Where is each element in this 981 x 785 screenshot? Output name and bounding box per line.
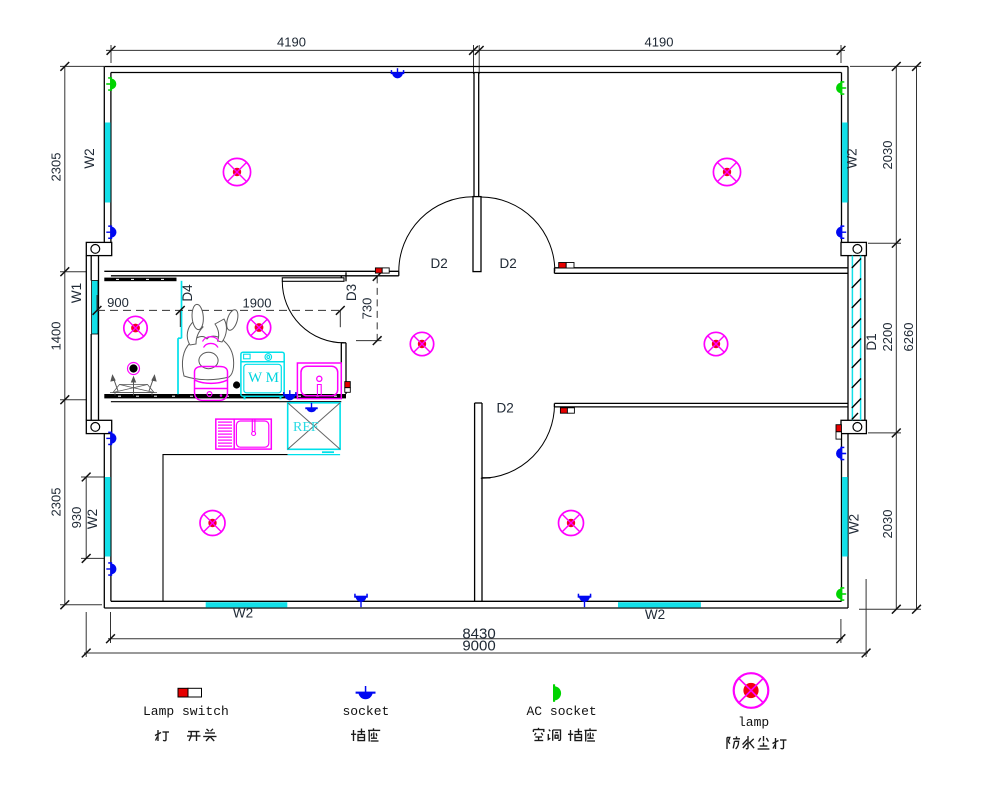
svg-text:W2: W2 bbox=[233, 606, 253, 621]
svg-text:D3: D3 bbox=[344, 284, 359, 301]
svg-text:socket: socket bbox=[343, 704, 390, 719]
svg-text:2030: 2030 bbox=[880, 141, 895, 170]
svg-text:D2: D2 bbox=[500, 256, 517, 271]
svg-text:D1: D1 bbox=[864, 333, 879, 350]
svg-text:Lamp switch: Lamp switch bbox=[143, 704, 229, 719]
svg-text:730: 730 bbox=[360, 298, 375, 320]
svg-text:900: 900 bbox=[107, 295, 129, 310]
svg-text:W1: W1 bbox=[69, 283, 84, 303]
svg-text:D2: D2 bbox=[431, 256, 448, 271]
svg-text:W2: W2 bbox=[82, 148, 97, 168]
svg-text:9000: 9000 bbox=[462, 638, 495, 655]
svg-text:1400: 1400 bbox=[49, 322, 64, 351]
svg-text:W2: W2 bbox=[845, 148, 860, 168]
svg-text:930: 930 bbox=[69, 507, 84, 529]
svg-text:2030: 2030 bbox=[880, 510, 895, 539]
svg-text:AC socket: AC socket bbox=[527, 704, 597, 719]
svg-text:W2: W2 bbox=[85, 509, 100, 529]
svg-text:D4: D4 bbox=[180, 284, 195, 302]
svg-text:4190: 4190 bbox=[645, 35, 674, 50]
svg-text:D2: D2 bbox=[497, 401, 514, 416]
svg-text:W M: W M bbox=[248, 370, 279, 386]
svg-text:lamp: lamp bbox=[738, 715, 769, 730]
svg-text:W2: W2 bbox=[847, 514, 862, 534]
svg-text:2305: 2305 bbox=[49, 153, 64, 182]
svg-text:2305: 2305 bbox=[49, 488, 64, 517]
svg-text:REF: REF bbox=[293, 420, 319, 435]
svg-text:4190: 4190 bbox=[277, 35, 306, 50]
svg-text:6260: 6260 bbox=[901, 323, 916, 352]
svg-text:1900: 1900 bbox=[243, 296, 272, 311]
svg-text:W2: W2 bbox=[645, 607, 665, 622]
svg-text:2200: 2200 bbox=[880, 323, 895, 352]
